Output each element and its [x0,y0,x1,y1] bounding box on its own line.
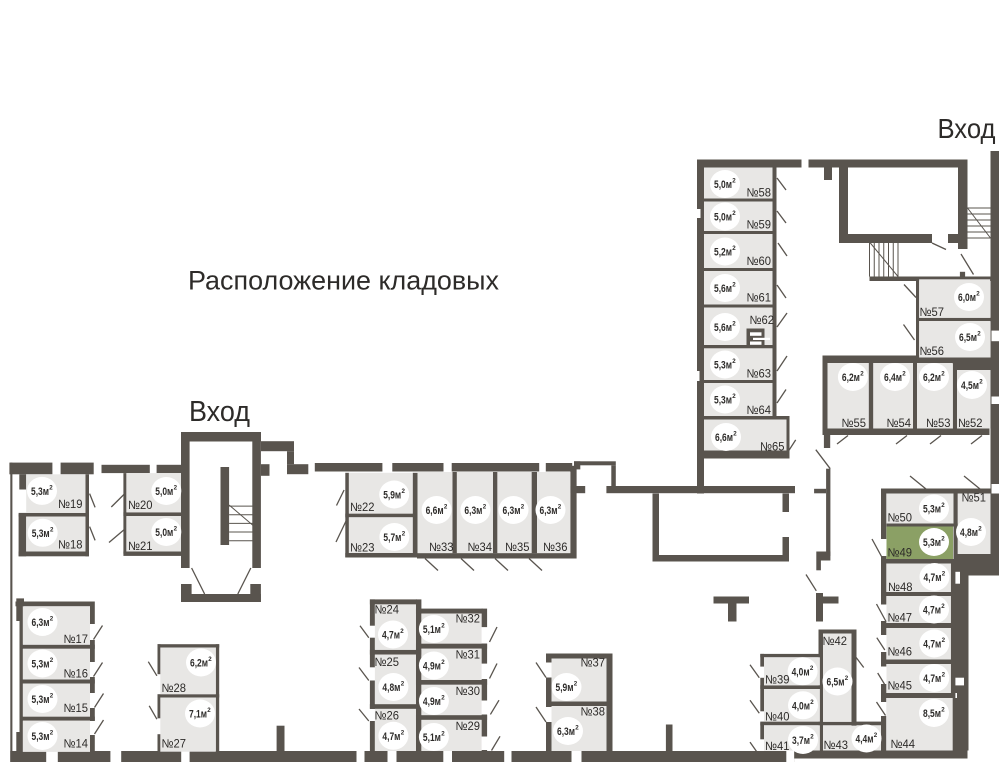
svg-text:6,3м: 6,3м [557,726,575,738]
svg-text:№64: №64 [747,403,772,417]
svg-text:Вход: Вход [938,113,996,144]
svg-text:4,7м: 4,7м [923,605,941,617]
svg-text:№58: №58 [747,186,772,200]
svg-text:№45: №45 [888,679,913,693]
svg-text:5,6м: 5,6м [714,283,732,295]
svg-text:4,7м: 4,7м [923,673,941,685]
svg-text:№43: №43 [824,738,849,752]
svg-text:№24: №24 [375,603,400,617]
svg-text:6,2м: 6,2м [842,372,860,384]
svg-text:2: 2 [978,526,982,533]
svg-text:5,1м: 5,1м [423,732,441,744]
svg-text:4,9м: 4,9м [423,661,441,673]
svg-text:2: 2 [942,637,946,644]
svg-text:6,5м: 6,5м [959,332,977,344]
svg-text:2: 2 [942,672,946,679]
svg-text:№52: №52 [958,416,983,430]
svg-text:5,2м: 5,2м [714,247,732,259]
svg-text:2: 2 [50,616,54,623]
svg-text:№62: №62 [750,313,775,327]
svg-text:2: 2 [902,371,906,378]
svg-text:2: 2 [483,504,487,511]
svg-text:№20: №20 [128,498,153,512]
svg-text:4,9м: 4,9м [423,696,441,708]
svg-text:2: 2 [441,695,445,702]
svg-text:№15: №15 [64,701,89,715]
svg-text:2: 2 [977,331,981,338]
svg-text:6,3м: 6,3м [540,505,558,517]
svg-text:5,3м: 5,3м [32,731,50,743]
svg-text:№37: №37 [581,656,606,670]
svg-text:№25: №25 [375,655,400,669]
svg-text:№36: №36 [543,540,568,554]
svg-text:5,3м: 5,3м [714,395,732,407]
svg-text:2: 2 [941,536,945,543]
svg-text:5,3м: 5,3м [32,528,50,540]
svg-text:6,3м: 6,3м [503,505,521,517]
svg-text:2: 2 [810,734,814,741]
svg-text:4,4м: 4,4м [856,734,874,746]
svg-text:2: 2 [732,245,736,252]
svg-text:5,6м: 5,6м [714,322,732,334]
svg-text:2: 2 [874,732,878,739]
svg-text:5,7м: 5,7м [383,532,401,544]
svg-text:2: 2 [50,657,54,664]
svg-text:4,7м: 4,7м [924,572,942,584]
svg-text:№18: №18 [58,538,83,552]
svg-text:2: 2 [441,731,445,738]
svg-text:2: 2 [441,659,445,666]
svg-text:№44: №44 [891,737,916,751]
svg-text:2: 2 [207,707,211,714]
svg-text:2: 2 [941,603,945,610]
svg-text:5,3м: 5,3м [923,537,941,549]
svg-text:4,7м: 4,7м [923,639,941,651]
svg-text:№56: №56 [920,344,945,358]
svg-text:№42: №42 [823,634,848,648]
svg-text:5,9м: 5,9м [383,490,401,502]
svg-text:№54: №54 [887,416,912,430]
svg-text:6,3м: 6,3м [32,617,50,629]
svg-text:№55: №55 [842,416,867,430]
svg-text:6,2м: 6,2м [923,372,941,384]
svg-text:2: 2 [575,725,579,732]
svg-text:№28: №28 [162,681,187,695]
svg-text:4,8м: 4,8м [382,682,400,694]
svg-text:№33: №33 [429,540,454,554]
svg-text:2: 2 [941,371,945,378]
svg-text:7,1м: 7,1м [189,709,207,721]
svg-text:2: 2 [845,675,849,682]
svg-text:2: 2 [574,681,578,688]
svg-text:2: 2 [942,571,946,578]
svg-text:2: 2 [732,178,736,185]
svg-text:№59: №59 [747,218,772,232]
svg-text:2: 2 [732,321,736,328]
svg-text:2: 2 [208,656,212,663]
svg-text:Вход: Вход [189,396,250,428]
svg-text:5,3м: 5,3м [31,486,49,498]
svg-text:3,7м: 3,7м [792,735,810,747]
svg-text:6,5м: 6,5м [827,677,845,689]
svg-text:2: 2 [558,504,562,511]
svg-text:№65: №65 [760,440,785,454]
svg-text:5,3м: 5,3м [923,504,941,516]
svg-text:№19: №19 [58,497,83,511]
svg-text:№48: №48 [888,580,913,594]
svg-text:№49: №49 [888,546,913,560]
svg-text:6,3м: 6,3м [464,505,482,517]
svg-text:2: 2 [49,484,53,491]
svg-text:2: 2 [174,526,178,533]
svg-text:5,9м: 5,9м [556,682,574,694]
svg-text:№34: №34 [468,540,493,554]
svg-text:2: 2 [810,699,814,706]
svg-text:2: 2 [810,665,814,672]
svg-text:№32: №32 [456,612,481,626]
svg-text:№21: №21 [128,539,153,553]
svg-text:2: 2 [732,282,736,289]
svg-text:2: 2 [50,693,54,700]
svg-text:4,7м: 4,7м [382,731,400,743]
svg-text:№41: №41 [765,739,790,753]
svg-text:4,5м: 4,5м [961,380,979,392]
svg-text:№29: №29 [456,719,481,733]
svg-text:2: 2 [733,431,737,438]
svg-text:№26: №26 [375,709,400,723]
svg-text:2: 2 [521,504,525,511]
svg-text:№50: №50 [888,511,913,525]
svg-text:2: 2 [732,393,736,400]
svg-text:6,6м: 6,6м [715,432,733,444]
svg-text:№30: №30 [456,684,481,698]
svg-text:5,3м: 5,3м [32,694,50,706]
svg-text:2: 2 [401,681,405,688]
svg-text:2: 2 [174,485,178,492]
svg-text:6,2м: 6,2м [190,658,208,670]
svg-text:2: 2 [402,531,406,538]
svg-text:5,0м: 5,0м [714,179,732,191]
svg-text:5,0м: 5,0м [155,527,173,539]
svg-text:5,0м: 5,0м [714,212,732,224]
svg-text:5,0м: 5,0м [155,486,173,498]
svg-text:№51: №51 [962,491,987,505]
svg-text:6,4м: 6,4м [884,372,902,384]
svg-text:6,6м: 6,6м [426,505,444,517]
svg-text:2: 2 [50,730,54,737]
svg-text:2: 2 [976,291,980,298]
svg-text:№38: №38 [581,705,606,719]
svg-text:№16: №16 [64,667,89,681]
svg-text:4,0м: 4,0м [792,666,810,678]
svg-text:4,7м: 4,7м [382,630,400,642]
svg-text:№61: №61 [747,291,772,305]
svg-text:№39: №39 [765,673,790,687]
svg-text:№60: №60 [747,254,772,268]
svg-text:№40: №40 [765,710,790,724]
svg-text:№23: №23 [350,541,375,555]
svg-text:№31: №31 [456,648,481,662]
svg-text:№53: №53 [926,416,951,430]
svg-text:8,5м: 8,5м [923,708,941,720]
svg-text:2: 2 [444,504,448,511]
svg-text:5,3м: 5,3м [714,360,732,372]
svg-text:№57: №57 [920,305,945,319]
svg-text:2: 2 [941,502,945,509]
svg-text:№46: №46 [888,645,913,659]
svg-text:2: 2 [50,526,54,533]
svg-text:№22: №22 [350,500,375,514]
svg-text:2: 2 [441,623,445,630]
svg-text:2: 2 [941,707,945,714]
svg-text:5,1м: 5,1м [423,624,441,636]
svg-text:4,0м: 4,0м [792,700,810,712]
svg-text:2: 2 [401,729,405,736]
svg-text:2: 2 [402,488,406,495]
svg-text:4,8м: 4,8м [960,527,978,539]
svg-text:5,3м: 5,3м [32,659,50,671]
svg-text:2: 2 [979,379,983,386]
svg-text:2: 2 [400,628,404,635]
svg-text:№27: №27 [162,737,187,751]
svg-text:6,0м: 6,0м [958,292,976,304]
svg-text:№17: №17 [64,632,89,646]
svg-text:2: 2 [732,358,736,365]
svg-text:№14: №14 [64,737,89,751]
svg-text:№63: №63 [747,367,772,381]
svg-text:Расположение кладовых: Расположение кладовых [188,266,499,296]
svg-text:2: 2 [860,371,864,378]
svg-text:2: 2 [732,210,736,217]
svg-text:№35: №35 [505,540,530,554]
svg-text:№47: №47 [888,611,913,625]
